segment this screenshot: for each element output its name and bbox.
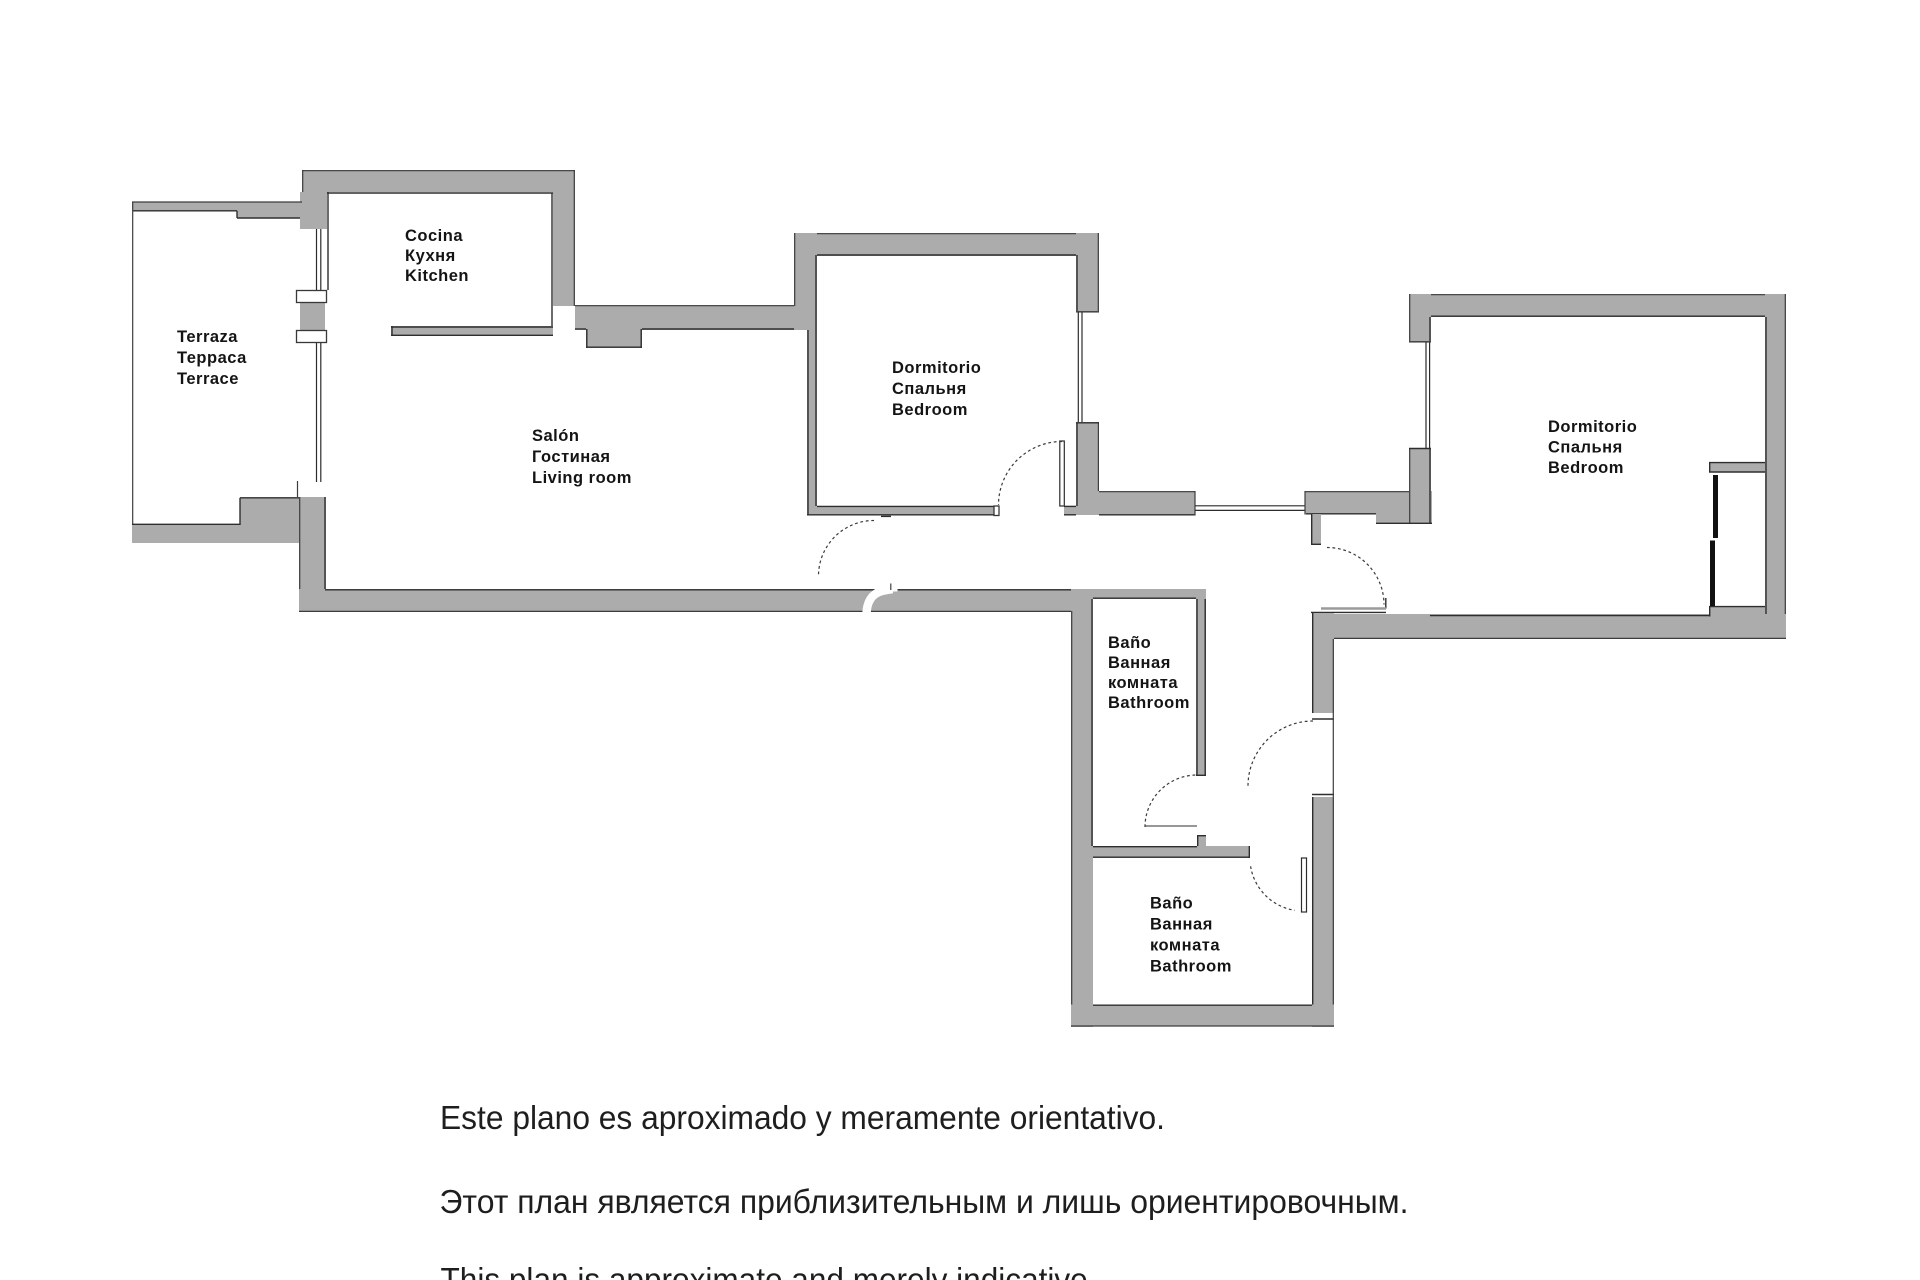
svg-text:Ванная: Ванная [1108,654,1171,672]
svg-text:Кухня: Кухня [405,247,456,265]
svg-text:Bathroom: Bathroom [1108,694,1190,712]
svg-text:Living room: Living room [532,469,632,487]
svg-text:Terrace: Terrace [177,370,239,388]
svg-text:Гостиная: Гостиная [532,448,611,466]
svg-text:Dormitorio: Dormitorio [1548,418,1637,436]
svg-text:Bathroom: Bathroom [1150,958,1232,976]
svg-text:Спальня: Спальня [892,380,967,398]
svg-text:Dormitorio: Dormitorio [892,359,981,377]
svg-text:Kitchen: Kitchen [405,267,469,285]
svg-text:Этот план является приблизител: Этот план является приблизительным и лиш… [440,1183,1409,1220]
svg-text:Спальня: Спальня [1548,439,1623,457]
svg-text:Salón: Salón [532,427,579,445]
svg-text:Terraza: Terraza [177,328,238,346]
svg-text:Bedroom: Bedroom [892,401,968,419]
svg-text:комната: комната [1108,674,1178,692]
svg-text:Терраса: Терраса [177,349,247,367]
svg-text:Baño: Baño [1108,634,1151,652]
svg-text:Bedroom: Bedroom [1548,459,1624,477]
svg-text:Cocina: Cocina [405,227,463,245]
svg-text:Este plano es aproximado y mer: Este plano es aproximado y meramente ori… [440,1099,1165,1136]
svg-text:Ванная: Ванная [1150,916,1213,934]
svg-text:комната: комната [1150,937,1220,955]
svg-text:Baño: Baño [1150,895,1193,913]
svg-text:This plan is approximate and m: This plan is approximate and merely indi… [441,1261,1097,1280]
